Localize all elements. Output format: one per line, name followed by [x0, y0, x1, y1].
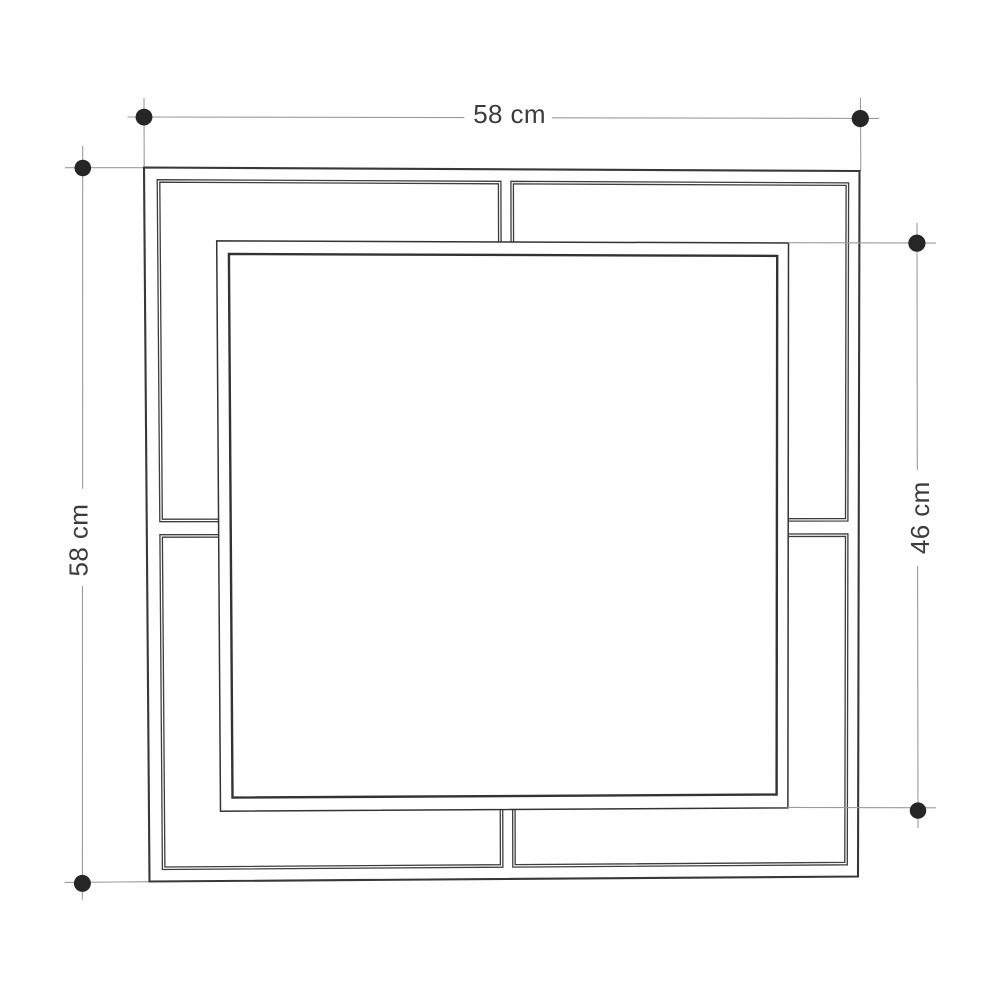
svg-text:58 cm: 58 cm	[473, 99, 546, 129]
svg-text:46 cm: 46 cm	[905, 481, 935, 554]
svg-text:58 cm: 58 cm	[64, 504, 94, 577]
